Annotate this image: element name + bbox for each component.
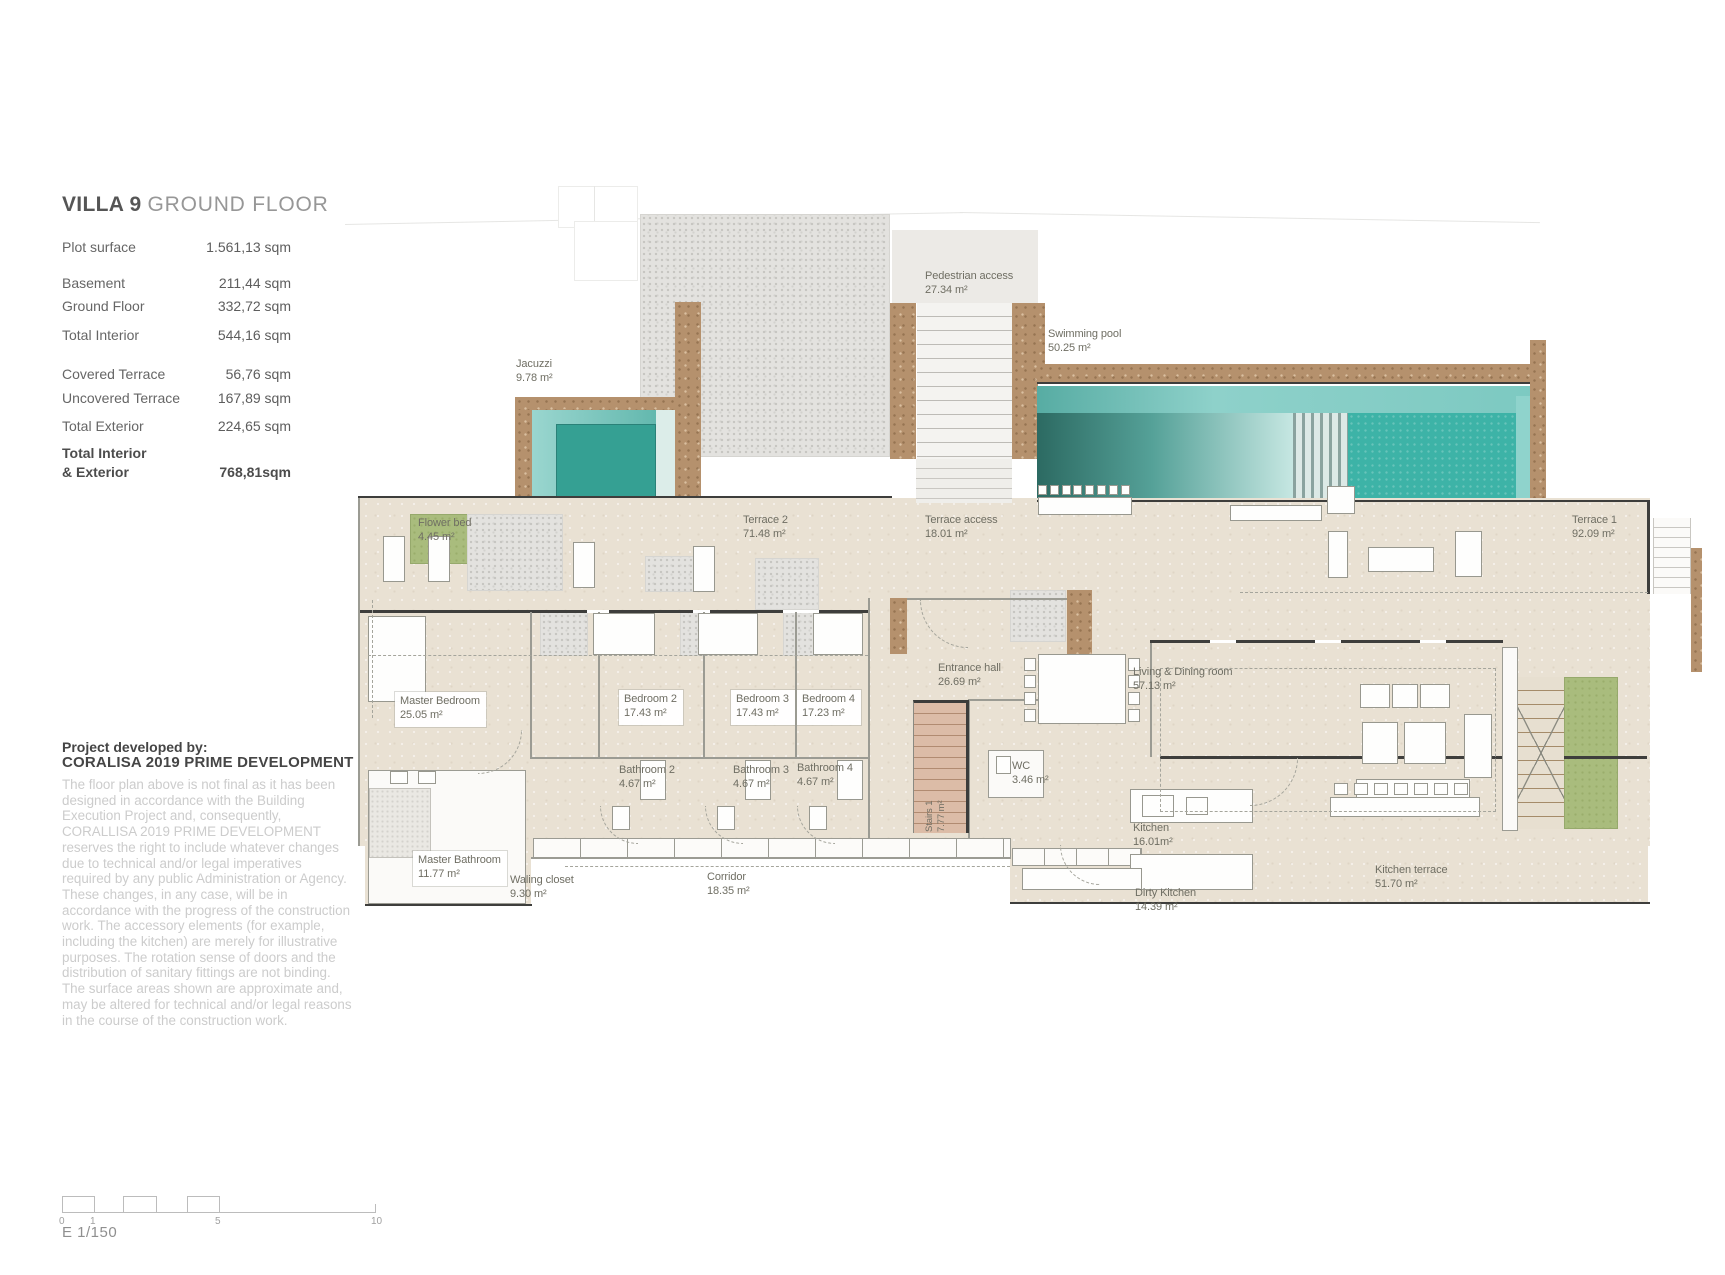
room-label-entrance-hall: Entrance hall26.69 m²: [938, 662, 1001, 690]
room-label-kitchen: Kitchen16.01m²: [1133, 822, 1173, 850]
room-label-pedestrian-access: Pedestrian access27.34 m²: [925, 270, 1013, 298]
room-name: Kitchen: [1133, 822, 1173, 836]
room-label-master-bedroom: Master Bedroom25.05 m²: [395, 692, 486, 727]
room-name: Master Bedroom: [400, 695, 480, 709]
room-area: 92.09 m²: [1572, 528, 1617, 542]
room-name: Flower bed: [418, 517, 471, 531]
room-area: 17.23 m²: [802, 707, 855, 721]
room-labels-layer: Pedestrian access27.34 m²Swimming pool50…: [0, 0, 1725, 1275]
room-area: 14.39 m²: [1135, 901, 1196, 915]
room-area: 4.67 m²: [619, 778, 675, 792]
room-label-living-dining: Living & Dining room57.13 m²: [1133, 666, 1233, 694]
room-area: 3.46 m²: [1012, 774, 1049, 788]
room-label-bedroom-4: Bedroom 417.23 m²: [797, 690, 861, 725]
room-name: WC: [1012, 760, 1049, 774]
room-label-terrace-1: Terrace 192.09 m²: [1572, 514, 1617, 542]
room-name: Corridor: [707, 871, 753, 885]
room-label-bathroom-3: Bathroom 34.67 m²: [733, 764, 789, 792]
room-label-flower-bed: Flower bed4.45 m²: [418, 517, 471, 545]
room-area: 17.43 m²: [624, 707, 677, 721]
room-name: Swimming pool: [1048, 328, 1121, 342]
room-area: 50.25 m²: [1048, 342, 1121, 356]
room-name: Entrance hall: [938, 662, 1001, 676]
room-label-bathroom-4: Bathroom 44.67 m²: [797, 762, 853, 790]
room-name: Bathroom 3: [733, 764, 789, 778]
room-area: 25.05 m²: [400, 709, 480, 723]
room-area: 18.01 m²: [925, 528, 998, 542]
room-label-corridor: Corridor18.35 m²: [707, 871, 753, 899]
room-area: 11.77 m²: [418, 868, 501, 882]
room-label-master-bathroom: Master Bathroom11.77 m²: [413, 851, 507, 886]
room-area: 71.48 m²: [743, 528, 788, 542]
room-label-waling-closet: Waling closet9.30 m²: [510, 874, 574, 902]
room-name: Pedestrian access: [925, 270, 1013, 284]
room-name: Master Bathroom: [418, 854, 501, 868]
room-area: 51.70 m²: [1375, 878, 1447, 892]
room-area: 4.67 m²: [733, 778, 789, 792]
room-name: Stairs 1: [924, 800, 936, 832]
room-area: 18.35 m²: [707, 885, 753, 899]
floor-plan-page: VILLA 9GROUND FLOOR Plot surface1.561,13…: [0, 0, 1725, 1275]
room-label-jacuzzi: Jacuzzi9.78 m²: [516, 358, 553, 386]
room-area: 26.69 m²: [938, 676, 1001, 690]
room-name: Dirty Kitchen: [1135, 887, 1196, 901]
room-name: Bathroom 2: [619, 764, 675, 778]
room-area: 9.78 m²: [516, 372, 553, 386]
room-label-wc: WC3.46 m²: [1012, 760, 1049, 788]
room-area: 4.45 m²: [418, 531, 471, 545]
room-label-dirty-kitchen: Dirty Kitchen14.39 m²: [1135, 887, 1196, 915]
room-name: Terrace access: [925, 514, 998, 528]
room-name: Terrace 2: [743, 514, 788, 528]
room-area: 16.01m²: [1133, 836, 1173, 850]
room-label-bedroom-3: Bedroom 317.43 m²: [731, 690, 795, 725]
room-area: 17.43 m²: [736, 707, 789, 721]
room-area: 9.30 m²: [510, 888, 574, 902]
room-name: Bedroom 4: [802, 693, 855, 707]
room-label-kitchen-terrace: Kitchen terrace51.70 m²: [1375, 864, 1447, 892]
room-area: 4.67 m²: [797, 776, 853, 790]
room-name: Jacuzzi: [516, 358, 553, 372]
room-name: Kitchen terrace: [1375, 864, 1447, 878]
room-label-swimming-pool: Swimming pool50.25 m²: [1048, 328, 1121, 356]
room-label-stairs-1: Stairs 17.77 m²: [924, 800, 948, 832]
room-name: Terrace 1: [1572, 514, 1617, 528]
room-area: 57.13 m²: [1133, 680, 1233, 694]
room-name: Bedroom 3: [736, 693, 789, 707]
room-name: Bedroom 2: [624, 693, 677, 707]
room-name: Living & Dining room: [1133, 666, 1233, 680]
room-name: Bathroom 4: [797, 762, 853, 776]
room-label-terrace-2: Terrace 271.48 m²: [743, 514, 788, 542]
room-label-terrace-access: Terrace access18.01 m²: [925, 514, 998, 542]
room-area: 27.34 m²: [925, 284, 1013, 298]
room-label-bathroom-2: Bathroom 24.67 m²: [619, 764, 675, 792]
room-label-bedroom-2: Bedroom 217.43 m²: [619, 690, 683, 725]
room-name: Waling closet: [510, 874, 574, 888]
room-area: 7.77 m²: [936, 800, 948, 832]
